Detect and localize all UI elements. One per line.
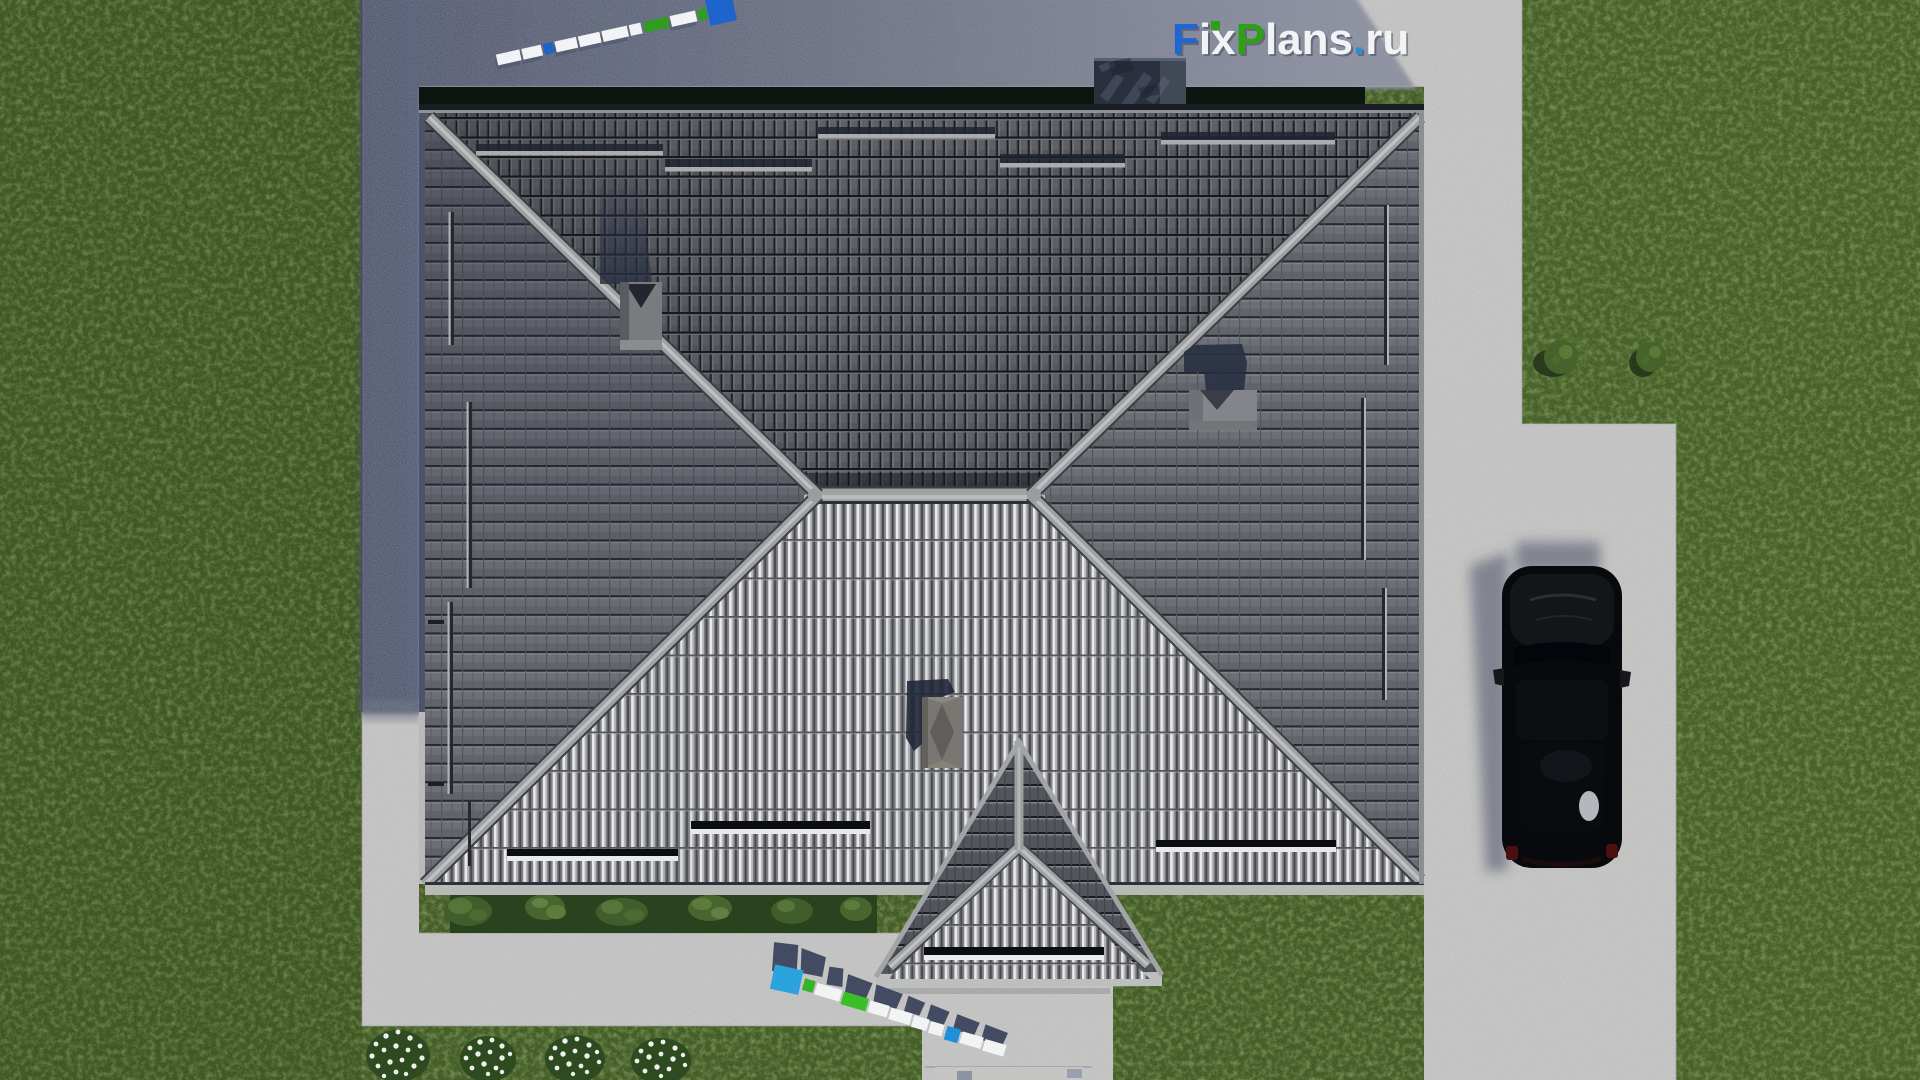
svg-text:FixPlans.ru: FixPlans.ru [1172,15,1409,64]
